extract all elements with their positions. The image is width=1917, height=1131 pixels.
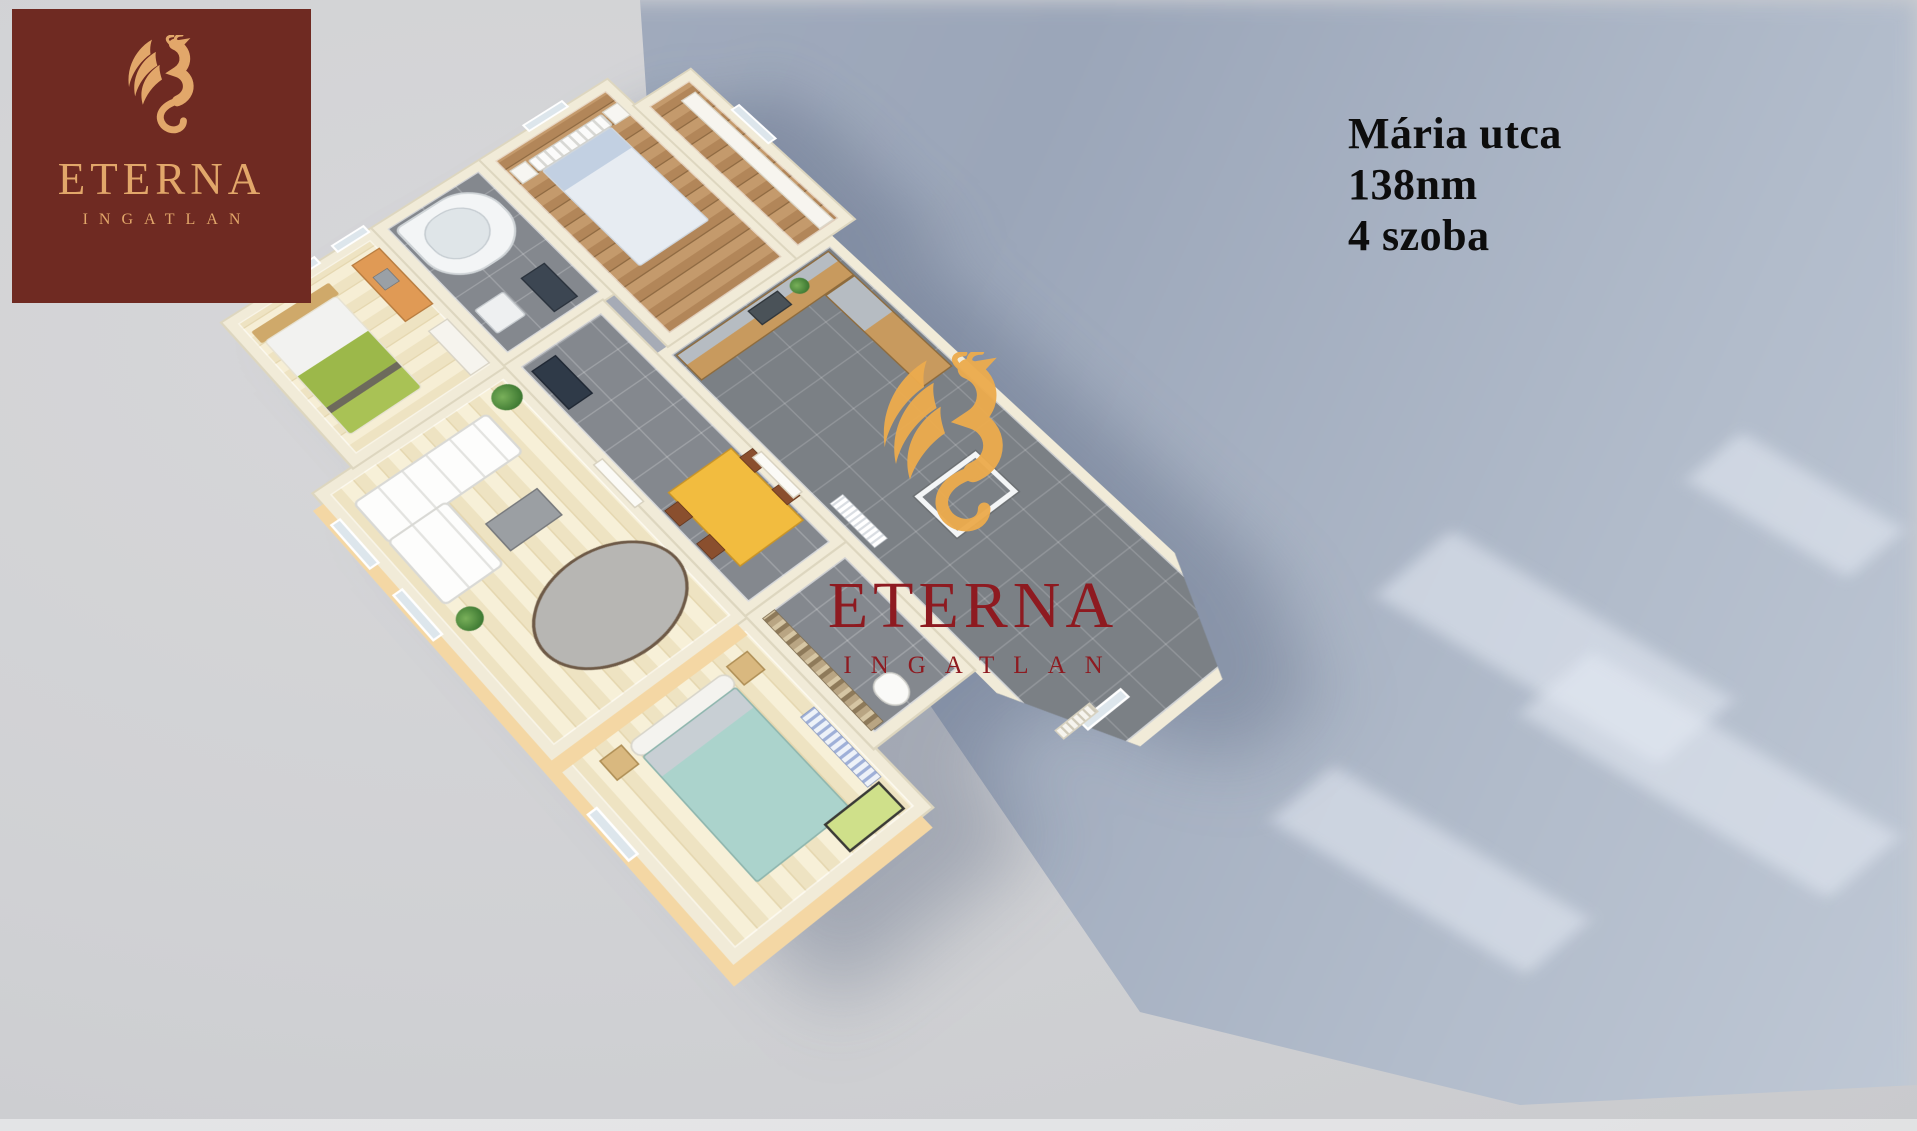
phoenix-watermark-icon (861, 352, 1029, 562)
agency-logo-card: ETERNA INGATLAN (12, 9, 311, 303)
watermark-brand-text: ETERNA (818, 573, 1128, 639)
potted-plant (450, 601, 489, 636)
phoenix-icon (116, 35, 208, 150)
coffee-table (485, 488, 563, 552)
property-rooms: 4 szoba (1348, 210, 1562, 261)
property-area: 138nm (1348, 159, 1562, 210)
logo-brand-text: ETERNA (12, 157, 311, 202)
dark-cabinet (520, 263, 578, 313)
bottom-light-strip (0, 1119, 1917, 1131)
property-street: Mária utca (1348, 108, 1562, 159)
mirror-cabinet (531, 355, 593, 410)
washing-machine (474, 291, 527, 334)
logo-subtitle-text: INGATLAN (12, 212, 311, 228)
property-info: Mária utca 138nm 4 szoba (1348, 108, 1562, 261)
watermark: ETERNA INGATLAN (818, 352, 1128, 678)
watermark-subtitle-text: INGATLAN (818, 653, 1128, 678)
